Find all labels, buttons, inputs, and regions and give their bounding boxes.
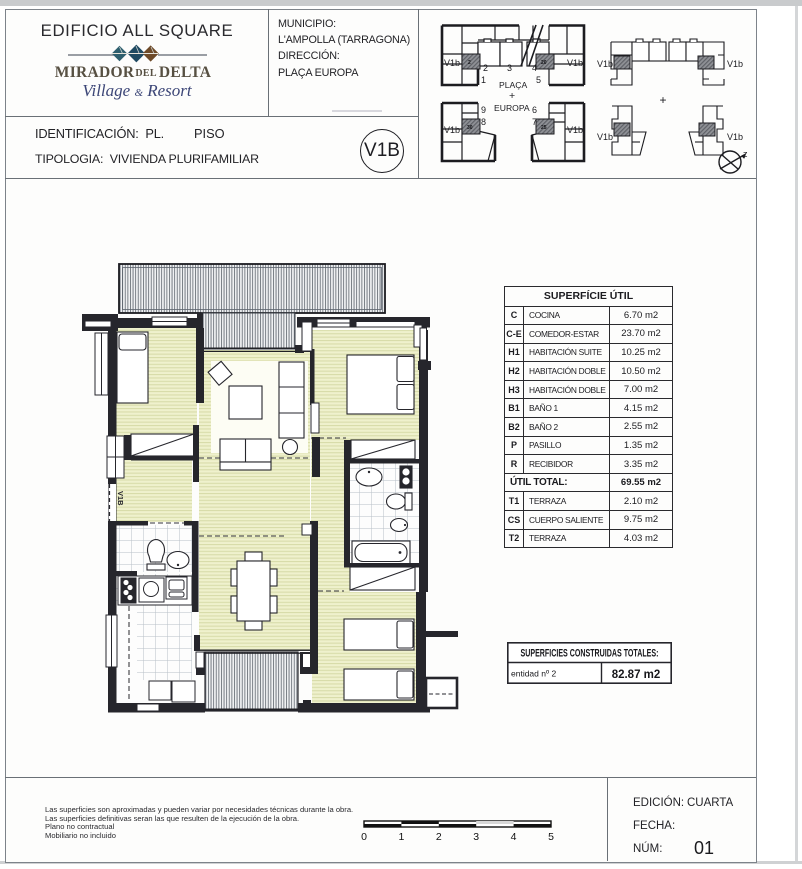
svg-text:1: 1 [398, 831, 404, 843]
svg-text:5: 5 [548, 831, 554, 843]
svg-text:4: 4 [511, 831, 517, 843]
svg-text:82.87 m2: 82.87 m2 [612, 669, 661, 681]
svg-text:SUPERFICIES CONSTRUIDAS TOTALE: SUPERFICIES CONSTRUIDAS TOTALES: [521, 648, 659, 660]
svg-text:V1B: V1B [116, 491, 125, 506]
svg-text:3: 3 [473, 831, 479, 843]
svg-text:2: 2 [436, 831, 442, 843]
svg-text:0: 0 [361, 831, 367, 843]
svg-text:entidad nº 2: entidad nº 2 [511, 669, 556, 679]
